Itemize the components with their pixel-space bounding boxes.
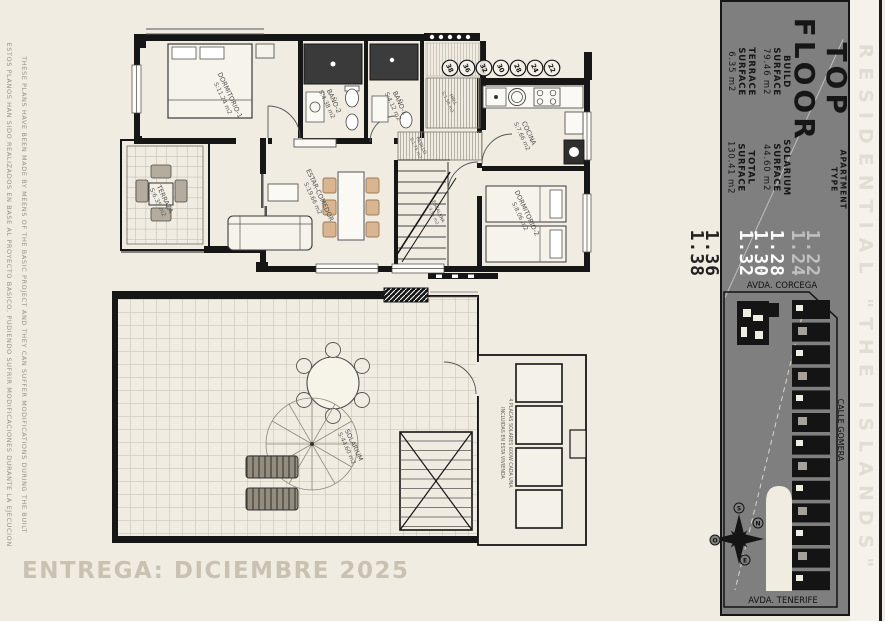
living-furniture: [228, 139, 379, 250]
street-tenerife: AVDA. TENERIFE: [748, 596, 818, 606]
street-corcega: AVDA. CORCEGA: [747, 281, 818, 291]
building-cluster: [737, 301, 779, 345]
top-floor-plan: 38 36 32 30 28 24 22 DORMITORIO-1 S:11.2…: [110, 20, 655, 292]
street-gomera: CALLE GOMERA: [836, 399, 845, 462]
disclaimer-es: ESTOS PLANOS HAN SIDO REALIZADOS EN BASE…: [4, 43, 11, 547]
disclaimer-en: THESE PLANS HAVE BEEN MADE BY MEENS OF T…: [19, 43, 26, 547]
kitchen-fixtures: [483, 86, 584, 164]
solarium-plan: 4 PLACAS SOLARES 600W CADA UNA INCLUIDAS…: [105, 285, 605, 559]
plan-sheet: THESE PLANS HAVE BEEN MADE BY MEENS OF T…: [0, 0, 885, 621]
solar-note-line1: 4 PLACAS SOLARES 600W CADA UNA: [507, 398, 513, 488]
compass-s: S: [737, 505, 741, 512]
delivery-date: ENTREGA: DICIEMBRE 2025: [22, 558, 410, 584]
compass-e: E: [743, 557, 747, 564]
open-parcel: [766, 486, 792, 591]
compass-n: N: [755, 520, 760, 527]
compass-rose: S O N E: [710, 503, 764, 565]
solar-note-line2: INCLUIDAS EN ESTA VIVIENDA: [499, 407, 505, 479]
stair-headhouse: [400, 432, 472, 530]
compass-o: O: [712, 537, 717, 544]
stairs: [396, 160, 456, 268]
building-row: [792, 300, 830, 590]
